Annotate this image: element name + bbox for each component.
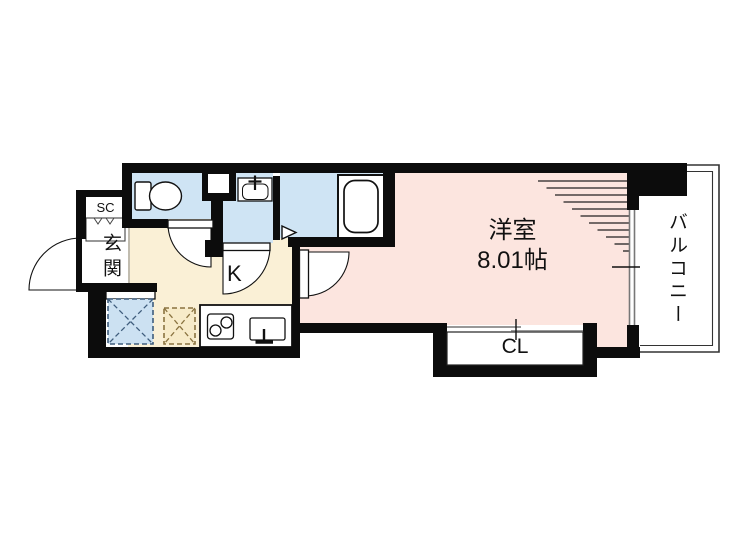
shoe-closet-label: SC <box>86 198 125 217</box>
refrigerator-space-icon <box>164 308 195 344</box>
main-room-door-leaf <box>300 250 309 298</box>
kitchen-label: K <box>227 261 242 287</box>
toilet-icon <box>135 182 182 210</box>
main-room-size-label: 8.01帖 <box>432 240 593 275</box>
balcony-label: バルコニー <box>666 212 687 327</box>
entrance-door <box>29 238 81 290</box>
washroom-door-leaf <box>223 243 270 251</box>
toilet-door-leaf <box>168 220 213 228</box>
entrance-label: 玄関 <box>99 233 121 283</box>
kitchen-counter <box>200 305 292 347</box>
bathtub-icon <box>338 175 384 238</box>
floor-plan: SC 玄関 K 洋室 8.01帖 CL バルコニー <box>0 0 750 550</box>
closet-label: CL <box>475 335 555 359</box>
pipe-space <box>208 174 229 193</box>
washing-machine-space-icon <box>106 289 155 344</box>
washbasin-icon <box>238 176 272 202</box>
